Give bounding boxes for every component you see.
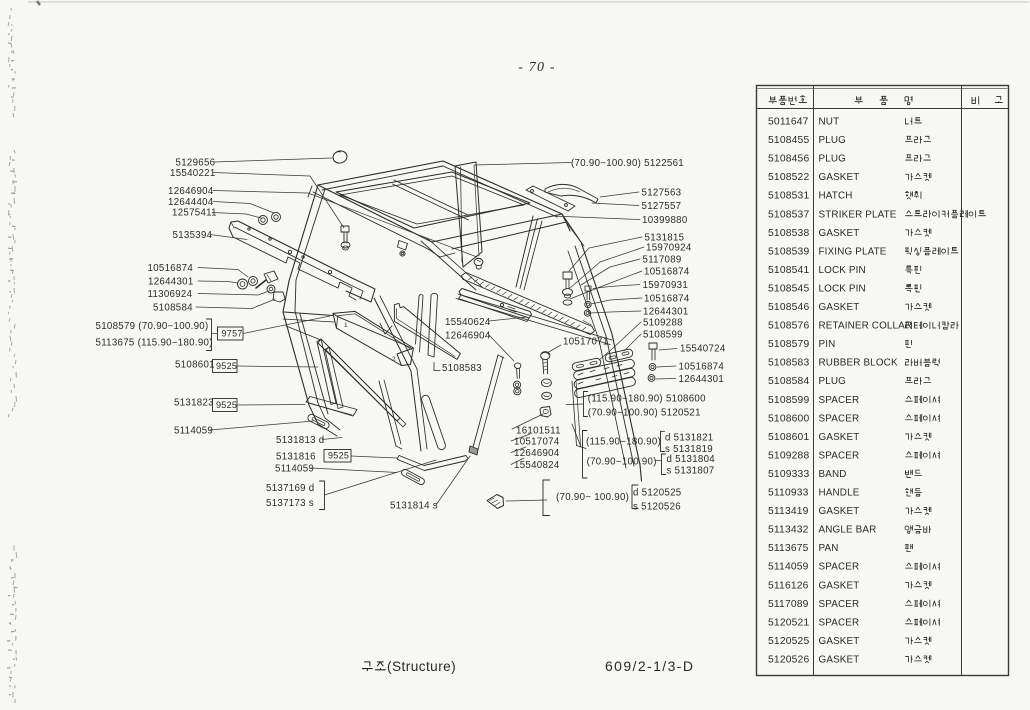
svg-text:BAND: BAND (819, 469, 847, 480)
svg-text:5108537: 5108537 (768, 209, 809, 220)
svg-text:GASKET: GASKET (819, 228, 860, 239)
svg-text:5108522: 5108522 (768, 172, 809, 183)
svg-text:11306924: 11306924 (148, 289, 193, 300)
svg-text:d 5131804: d 5131804 (667, 454, 716, 465)
svg-text:(115.90−180.90): (115.90−180.90) (586, 437, 661, 448)
svg-text:SPACER: SPACER (819, 562, 860, 573)
svg-text:5127563: 5127563 (642, 188, 682, 199)
svg-text:d 5131821: d 5131821 (665, 432, 714, 443)
svg-text:5108584: 5108584 (768, 376, 809, 387)
svg-text:5137173 s: 5137173 s (266, 498, 314, 509)
svg-text:15970924: 15970924 (646, 243, 692, 254)
svg-text:5108601: 5108601 (175, 360, 215, 371)
svg-text:5113675: 5113675 (768, 543, 809, 554)
svg-text:12644301: 12644301 (679, 374, 725, 385)
svg-text:5131823: 5131823 (174, 398, 214, 409)
svg-text:SPACER: SPACER (819, 599, 860, 610)
svg-text:5108455: 5108455 (768, 135, 809, 146)
svg-text:5108583: 5108583 (442, 363, 482, 374)
svg-text:(70.90−100.90) 5120521: (70.90−100.90) 5120521 (588, 408, 701, 419)
svg-text:5113419: 5113419 (768, 506, 809, 517)
svg-text:GASKET: GASKET (819, 636, 860, 647)
svg-text:5108546: 5108546 (768, 302, 809, 313)
svg-text:9757: 9757 (222, 329, 243, 339)
svg-text:1: 1 (344, 322, 348, 329)
svg-text:(70.90−100.90): (70.90−100.90) (587, 457, 657, 468)
svg-text:5108576: 5108576 (768, 321, 809, 332)
svg-text:5108531: 5108531 (768, 191, 809, 202)
svg-text:d 5120525: d 5120525 (633, 488, 682, 499)
svg-text:5120521: 5120521 (768, 617, 809, 628)
svg-text:5108584: 5108584 (153, 303, 193, 314)
svg-text:5108600: 5108600 (768, 413, 809, 424)
svg-text:NUT: NUT (819, 117, 840, 128)
svg-text:SPACER: SPACER (819, 413, 860, 424)
svg-text:s 5131807: s 5131807 (667, 466, 715, 477)
svg-text:PAN: PAN (819, 543, 839, 554)
svg-text:5108583: 5108583 (768, 358, 809, 369)
svg-text:15540824: 15540824 (514, 460, 560, 471)
svg-text:5108579 (70.90−100.90): 5108579 (70.90−100.90) (96, 321, 209, 332)
svg-text:LOCK PIN: LOCK PIN (819, 265, 866, 276)
svg-text:5120526: 5120526 (768, 654, 809, 665)
svg-text:RUBBER BLOCK: RUBBER BLOCK (819, 358, 898, 369)
svg-text:16101511: 16101511 (516, 426, 561, 437)
svg-text:ANGLE BAR: ANGLE BAR (819, 525, 877, 536)
svg-text:5135394: 5135394 (173, 230, 213, 241)
svg-text:5117089: 5117089 (768, 599, 809, 610)
svg-text:5011647: 5011647 (768, 117, 809, 128)
svg-text:5114059: 5114059 (174, 426, 213, 437)
svg-text:10516874: 10516874 (644, 294, 690, 305)
svg-text:5108545: 5108545 (768, 283, 809, 294)
svg-text:10517071: 10517071 (563, 337, 609, 348)
svg-text:5113675 (115.90−180.90): 5113675 (115.90−180.90) (96, 338, 213, 349)
svg-text:5131816: 5131816 (276, 452, 316, 463)
svg-text:GASKET: GASKET (819, 580, 860, 591)
svg-text:LOCK PIN: LOCK PIN (819, 283, 866, 294)
svg-text:PLUG: PLUG (819, 135, 847, 146)
svg-text:5114059: 5114059 (275, 464, 314, 475)
svg-text:5109333: 5109333 (768, 469, 809, 480)
svg-text:5129656: 5129656 (176, 158, 216, 169)
svg-text:9525: 9525 (216, 400, 237, 410)
svg-text:GASKET: GASKET (819, 432, 860, 443)
svg-text:10516874: 10516874 (679, 362, 725, 373)
svg-text:5109288: 5109288 (643, 318, 683, 329)
svg-text:12644404: 12644404 (168, 197, 214, 208)
svg-text:RETAINER COLLAR: RETAINER COLLAR (819, 321, 913, 332)
svg-text:(Structure): (Structure) (387, 659, 456, 674)
svg-text:(70.90−100.90) 5122561: (70.90−100.90) 5122561 (571, 158, 684, 169)
svg-text:HANDLE: HANDLE (819, 488, 860, 499)
svg-text:5116126: 5116126 (768, 580, 809, 591)
svg-text:12575411: 12575411 (172, 208, 217, 219)
svg-text:(115.90−180.90) 5108600: (115.90−180.90) 5108600 (588, 394, 706, 405)
svg-text:5108579: 5108579 (768, 339, 809, 350)
svg-text:PIN: PIN (819, 339, 836, 350)
svg-text:SPACER: SPACER (819, 450, 860, 461)
svg-text:5137169 d: 5137169 d (266, 483, 315, 494)
svg-text:12646904: 12646904 (514, 448, 560, 459)
svg-text:15540221: 15540221 (170, 168, 216, 179)
svg-text:5108539: 5108539 (768, 246, 809, 257)
svg-text:HATCH: HATCH (819, 191, 853, 202)
svg-text:15540624: 15540624 (445, 317, 491, 328)
svg-text:15970931: 15970931 (643, 280, 689, 291)
svg-text:5108599: 5108599 (768, 395, 809, 406)
svg-text:5114059: 5114059 (768, 562, 809, 573)
svg-text:GASKET: GASKET (819, 654, 860, 665)
svg-text:PLUG: PLUG (819, 154, 847, 165)
svg-text:s 5120526: s 5120526 (633, 502, 681, 513)
svg-text:5109288: 5109288 (768, 450, 809, 461)
svg-text:10516874: 10516874 (644, 267, 690, 278)
svg-text:12646904: 12646904 (445, 331, 491, 342)
svg-text:5127557: 5127557 (642, 201, 682, 212)
svg-text:10399880: 10399880 (642, 215, 688, 226)
svg-text:15540724: 15540724 (680, 344, 726, 355)
svg-text:2: 2 (392, 356, 396, 363)
svg-text:5108541: 5108541 (768, 265, 809, 276)
svg-text:9525: 9525 (216, 361, 237, 371)
svg-text:12644301: 12644301 (148, 277, 194, 288)
svg-text:FIXING PLATE: FIXING PLATE (819, 246, 887, 257)
svg-text:PLUG: PLUG (819, 376, 847, 387)
svg-text:12644301: 12644301 (643, 307, 689, 318)
svg-text:GASKET: GASKET (819, 172, 860, 183)
svg-text:10517074: 10517074 (514, 437, 560, 448)
svg-text:5108599: 5108599 (643, 330, 683, 341)
svg-text:5131814 s: 5131814 s (390, 501, 438, 512)
svg-text:5110933: 5110933 (768, 488, 809, 499)
svg-text:GASKET: GASKET (819, 506, 860, 517)
svg-text:5117089: 5117089 (643, 255, 682, 266)
svg-text:5108538: 5108538 (768, 228, 809, 239)
svg-text:12646904: 12646904 (168, 186, 214, 197)
svg-text:609/2-1/3-D: 609/2-1/3-D (605, 658, 694, 674)
svg-text:5131813 d: 5131813 d (276, 435, 325, 446)
svg-text:5113432: 5113432 (768, 525, 809, 536)
svg-text:5120525: 5120525 (768, 636, 809, 647)
svg-text:9525: 9525 (328, 451, 349, 461)
svg-text:10516874: 10516874 (148, 263, 194, 274)
svg-text:SPACER: SPACER (819, 617, 860, 628)
svg-text:GASKET: GASKET (819, 302, 860, 313)
svg-text:5108456: 5108456 (768, 154, 809, 165)
svg-text:5108601: 5108601 (768, 432, 809, 443)
svg-text:- 70 -: - 70 - (518, 60, 556, 75)
svg-text:SPACER: SPACER (819, 395, 860, 406)
svg-text:(70.90− 100.90): (70.90− 100.90) (556, 492, 629, 503)
svg-text:STRIKER PLATE: STRIKER PLATE (819, 209, 897, 220)
